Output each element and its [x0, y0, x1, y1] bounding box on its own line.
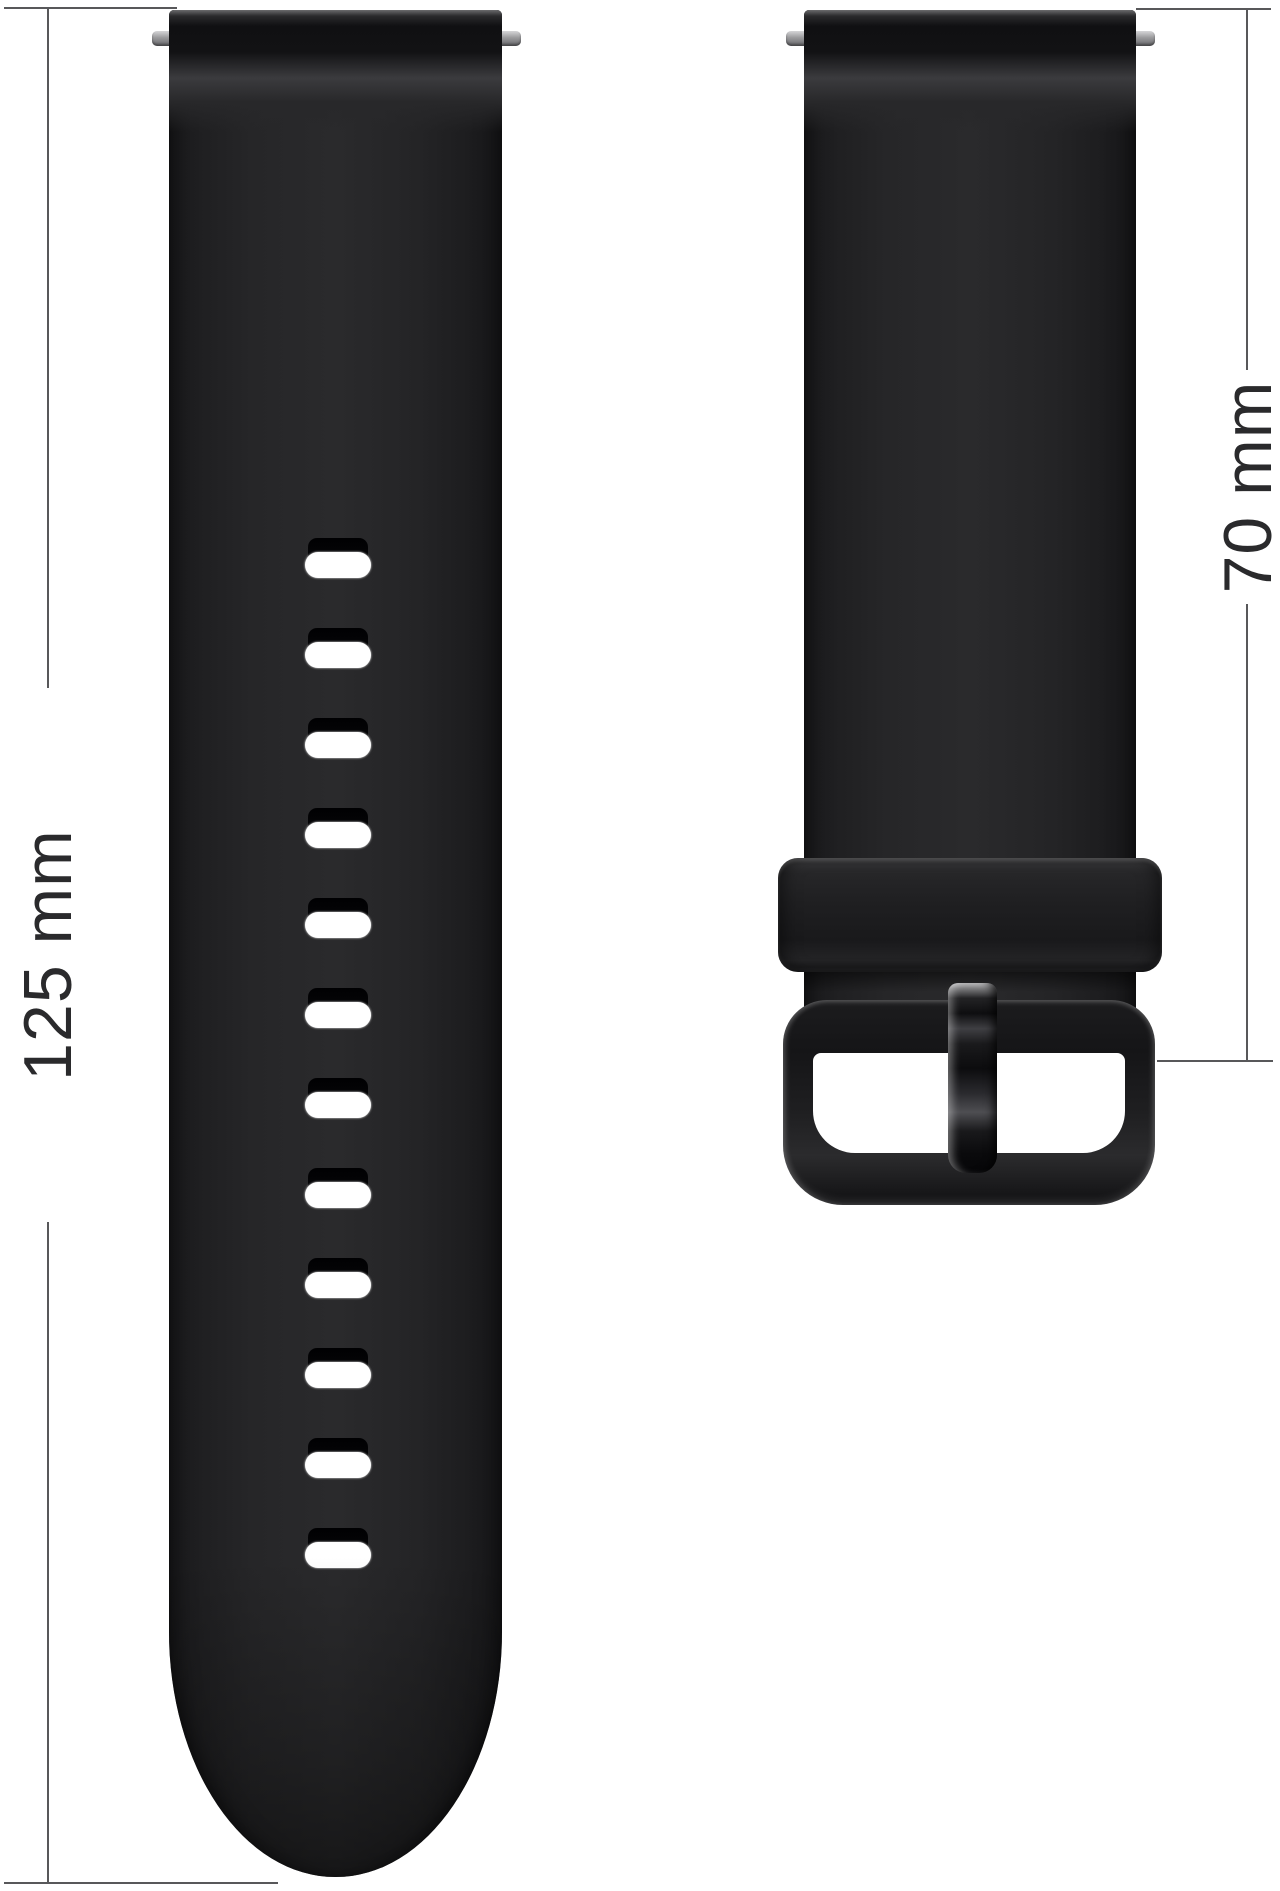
- dimension-line-vertical-upper: [47, 8, 49, 688]
- dimension-tick-top: [4, 7, 177, 9]
- hole-slot: [305, 1092, 371, 1118]
- buckle-strap-length-label: 70 mm: [1209, 381, 1280, 594]
- dimension-tick-bottom: [1157, 1060, 1273, 1062]
- hole-slot: [305, 642, 371, 668]
- hole-slot: [305, 822, 371, 848]
- strap-hole: [305, 1258, 371, 1302]
- dimension-line-vertical-upper: [1246, 9, 1248, 370]
- strap-tip-shading: [169, 1557, 502, 1877]
- dimension-line-vertical-lower: [47, 1222, 49, 1884]
- strap-hole: [305, 988, 371, 1032]
- keeper-loop: [778, 858, 1162, 972]
- strap-hole: [305, 808, 371, 852]
- product-photo: 125 mm 70 mm: [0, 0, 1280, 1891]
- strap-lug-end-highlight: [169, 10, 502, 132]
- long-strap: [169, 10, 502, 1877]
- dimension-tick-bottom: [4, 1882, 278, 1884]
- strap-hole: [305, 538, 371, 582]
- hole-slot: [305, 1362, 371, 1388]
- hole-slot: [305, 1182, 371, 1208]
- hole-slot: [305, 552, 371, 578]
- strap-lug-end-highlight: [804, 10, 1136, 132]
- strap-hole: [305, 628, 371, 672]
- hole-slot: [305, 1272, 371, 1298]
- strap-hole: [305, 718, 371, 762]
- dimension-tick-top: [1136, 8, 1271, 10]
- buckle-tongue: [948, 983, 997, 1173]
- strap-hole: [305, 898, 371, 942]
- strap-hole: [305, 1078, 371, 1122]
- strap-hole: [305, 1348, 371, 1392]
- strap-hole: [305, 1438, 371, 1482]
- hole-slot: [305, 732, 371, 758]
- hole-slot: [305, 1452, 371, 1478]
- hole-slot: [305, 912, 371, 938]
- strap-length-label: 125 mm: [9, 829, 87, 1081]
- dimension-line-vertical-lower: [1246, 604, 1248, 1062]
- hole-slot: [305, 1002, 371, 1028]
- strap-hole: [305, 1168, 371, 1212]
